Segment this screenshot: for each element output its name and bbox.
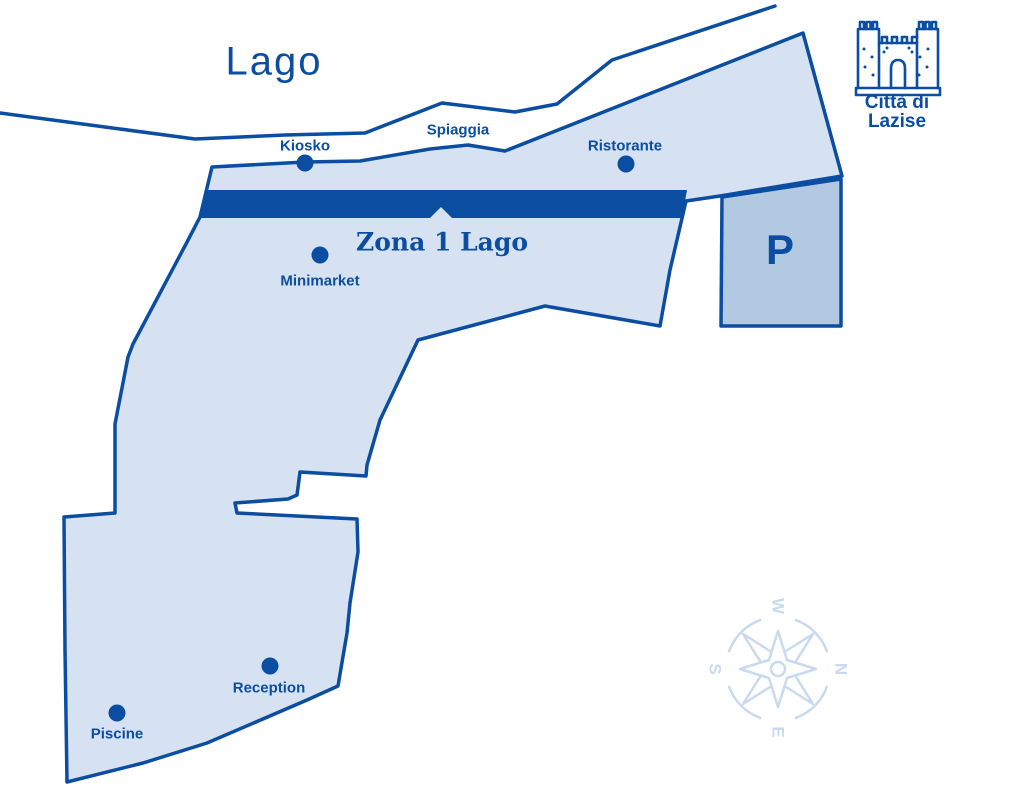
kiosko-label: Kiosko [280,138,330,155]
castle-icon [856,22,940,95]
lake-title: Lago [226,40,323,85]
kiosko-marker [297,155,314,172]
campsite-map: N E S W Lago Spiaggia Kiosko Ristorante … [0,0,1019,800]
compass-west-label: W [769,598,788,615]
minimarket-marker [312,247,329,264]
ristorante-marker [618,156,635,173]
compass-south-label: S [706,663,725,674]
reception-label: Reception [233,680,306,697]
compass-east-label: E [769,726,788,737]
city-badge-line1: Città di [865,93,929,112]
city-badge: Città di Lazise [865,93,929,131]
compass-north-label: N [832,663,851,675]
reception-marker [262,658,279,675]
piscine-label: Piscine [91,726,144,743]
zone-title: Zona 1 Lago [356,228,528,257]
parking-label: P [766,226,794,274]
piscine-marker [109,705,126,722]
beach-label: Spiaggia [427,122,490,139]
minimarket-label: Minimarket [280,273,359,290]
ristorante-label: Ristorante [588,138,662,155]
compass-rose-icon: N E S W [706,598,851,738]
city-badge-line2: Lazise [865,112,929,131]
